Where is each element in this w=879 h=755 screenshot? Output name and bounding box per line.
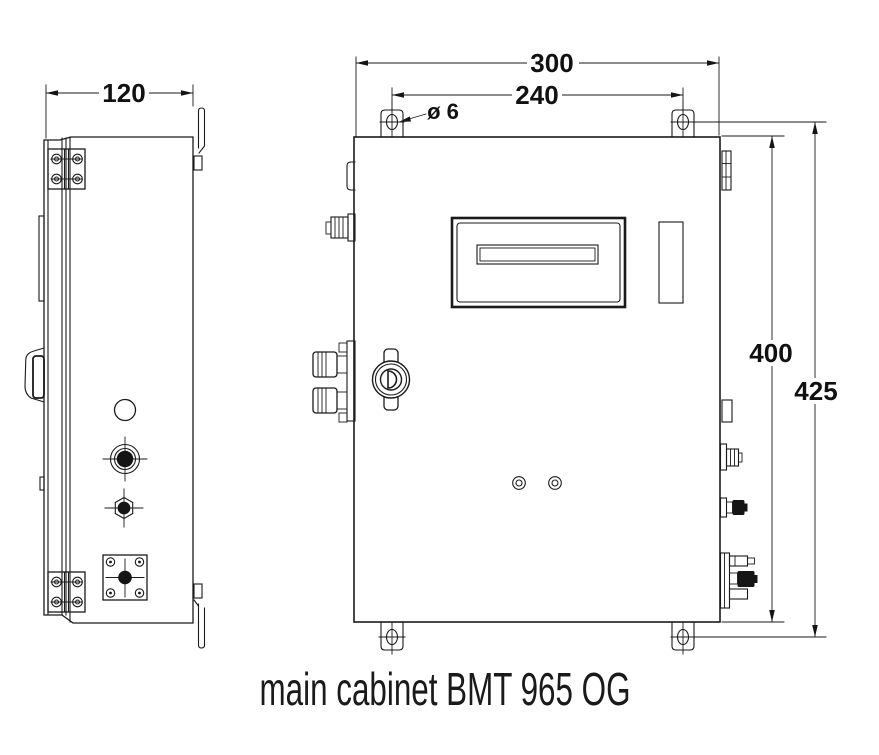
- side-cabinet-outline: [44, 137, 193, 623]
- cable-glands: [313, 341, 355, 422]
- right-edge-bottom-assembly: [721, 553, 758, 608]
- arrowhead-leader-icon: [399, 116, 411, 122]
- right-edge-connector-capped: [721, 498, 748, 517]
- rear-bracket-top: [194, 108, 205, 170]
- arrowhead-down-icon: [812, 625, 818, 637]
- mounting-tab-top-right: [671, 100, 695, 137]
- right-edge-hinge: [722, 151, 731, 190]
- arrowhead-up-icon: [812, 122, 818, 134]
- left-edge-knurled-connector: [326, 214, 355, 241]
- dim-label-120: 120: [102, 78, 145, 108]
- arrowhead-right-icon: [181, 90, 193, 96]
- mounting-tab-bottom-right: [671, 622, 695, 654]
- arrowhead-left-icon: [46, 90, 58, 96]
- side-plain-hole: [115, 400, 136, 421]
- dimension-height-400: 400: [722, 136, 798, 622]
- technical-drawing-page: 120: [0, 0, 879, 755]
- dim-label-diameter: ø 6: [427, 99, 459, 124]
- mounting-tab-bottom-left: [379, 622, 405, 654]
- side-flange-plate: [103, 555, 147, 600]
- dimension-depth-120: 120: [46, 78, 193, 138]
- dim-label-400: 400: [749, 338, 792, 368]
- right-edge-block: [722, 400, 732, 422]
- side-connector-large: [103, 437, 147, 481]
- mounting-tab-top-left: [380, 100, 404, 137]
- front-view: 300 240 ø 6: [313, 48, 843, 654]
- rear-bracket-bottom: [194, 584, 205, 648]
- side-connector-hex: [105, 489, 143, 527]
- lock-edge-profile: [25, 348, 44, 402]
- cabinet-drawing: 120: [0, 0, 879, 755]
- right-edge-connector: [721, 444, 743, 470]
- dim-label-300: 300: [530, 48, 573, 78]
- arrowhead-left-icon: [392, 92, 404, 98]
- drawing-caption: main cabinet BMT 965 OG: [260, 663, 631, 715]
- callout-hole-diameter: ø 6: [399, 99, 459, 124]
- arrowhead-up-icon: [769, 136, 775, 148]
- dim-label-425: 425: [794, 376, 837, 406]
- arrowhead-left-icon: [356, 60, 368, 66]
- arrowhead-right-icon: [671, 92, 683, 98]
- side-view: 120: [25, 78, 205, 648]
- display-edge-profile: [39, 216, 44, 301]
- arrowhead-right-icon: [707, 60, 719, 66]
- dim-label-240: 240: [515, 80, 558, 110]
- arrowhead-down-icon: [769, 610, 775, 622]
